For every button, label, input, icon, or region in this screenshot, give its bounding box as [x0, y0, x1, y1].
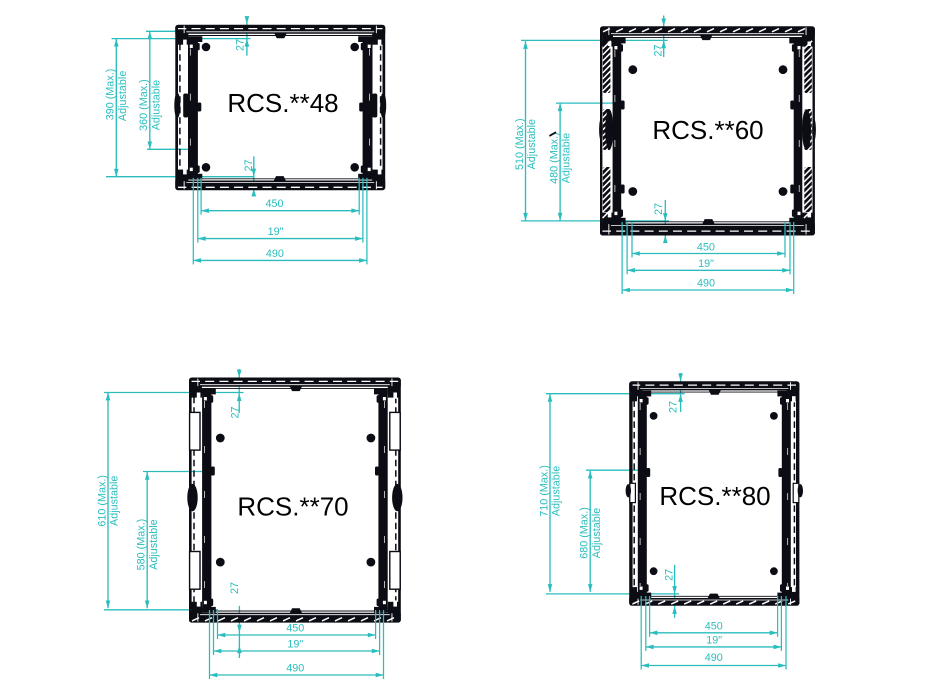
svg-text:490: 490	[697, 278, 715, 290]
svg-text:490: 490	[705, 652, 723, 664]
svg-text:19": 19"	[706, 634, 722, 646]
svg-text:RCS.**60: RCS.**60	[652, 115, 763, 145]
svg-text:450: 450	[697, 242, 715, 254]
svg-text:Adjustable: Adjustable	[117, 71, 129, 121]
svg-text:27: 27	[664, 569, 676, 581]
svg-text:580 (Max.): 580 (Max.)	[136, 519, 148, 571]
svg-text:610 (Max.): 610 (Max.)	[96, 475, 108, 527]
svg-text:490: 490	[286, 663, 304, 675]
svg-text:RCS.**70: RCS.**70	[237, 492, 348, 522]
svg-text:27: 27	[229, 406, 241, 418]
svg-text:Adjustable: Adjustable	[551, 466, 563, 516]
svg-text:19": 19"	[268, 226, 284, 238]
svg-text:19": 19"	[287, 639, 303, 651]
svg-text:RCS.**48: RCS.**48	[227, 88, 338, 118]
svg-text:Adjustable: Adjustable	[526, 119, 538, 169]
svg-text:710 (Max.): 710 (Max.)	[538, 465, 550, 517]
svg-text:27: 27	[667, 401, 679, 413]
svg-text:450: 450	[705, 620, 723, 632]
svg-text:27: 27	[652, 44, 664, 56]
svg-text:RCS.**80: RCS.**80	[659, 481, 770, 511]
svg-text:510 (Max.): 510 (Max.)	[514, 118, 526, 170]
svg-text:450: 450	[265, 198, 283, 210]
svg-text:360 (Max.): 360 (Max.)	[138, 79, 150, 131]
svg-text:490: 490	[266, 248, 284, 260]
svg-text:Adjustable: Adjustable	[591, 508, 603, 558]
svg-text:27: 27	[234, 39, 246, 51]
svg-text:27: 27	[229, 582, 241, 594]
svg-text:Adjustable: Adjustable	[561, 133, 573, 183]
svg-text:450: 450	[286, 623, 304, 635]
svg-text:390 (Max.): 390 (Max.)	[105, 69, 117, 121]
svg-text:27: 27	[243, 159, 255, 171]
svg-text:Adjustable: Adjustable	[148, 519, 160, 569]
svg-text:19": 19"	[698, 258, 714, 270]
svg-text:480 (Max.): 480 (Max.)	[549, 132, 561, 184]
svg-text:27: 27	[653, 203, 665, 215]
svg-text:Adjustable: Adjustable	[150, 80, 162, 130]
svg-text:680 (Max.): 680 (Max.)	[579, 507, 591, 559]
svg-text:Adjustable: Adjustable	[109, 476, 121, 526]
